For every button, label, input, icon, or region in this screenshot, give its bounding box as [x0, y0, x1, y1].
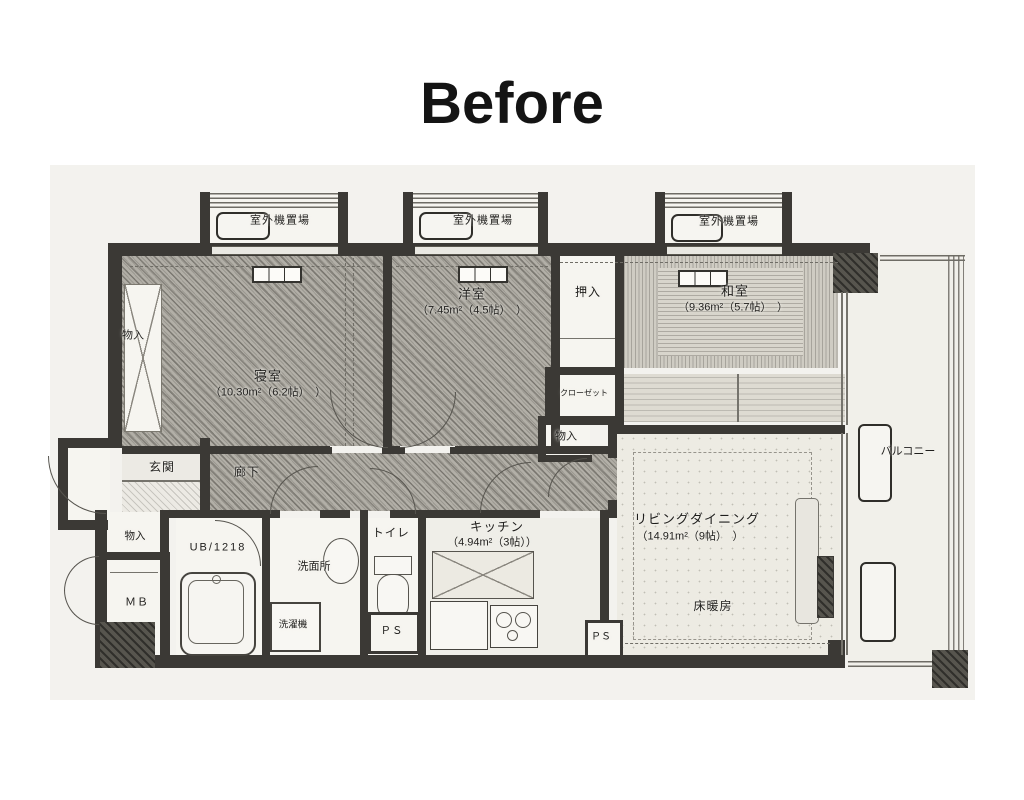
meter-box-label: ＭＢ	[125, 597, 149, 610]
cabinet-icon	[795, 498, 819, 624]
pipe-space-label: ＰＳ	[381, 625, 404, 637]
toilet-label: トイレ	[372, 527, 410, 540]
living-dining-label: リビングダイニング	[634, 513, 760, 528]
wall	[338, 192, 348, 248]
japanese-room-label: 和室	[721, 285, 749, 300]
window	[841, 292, 843, 425]
wall	[545, 416, 624, 425]
wall	[615, 425, 845, 434]
bedroom-label: 寝室	[254, 370, 282, 385]
window	[212, 246, 338, 255]
storage-left-floor	[124, 284, 162, 432]
floor-heating-label: 床暖房	[693, 600, 732, 614]
page-title: Before	[420, 70, 604, 137]
western-room-area-label: （7.45m²（4.5帖） ）	[417, 305, 527, 318]
outdoor-unit-label: 室外機置場	[250, 215, 310, 228]
oshiire-label: 押入	[575, 286, 601, 300]
kitchen-area-label: （4.94m²（3帖））	[447, 537, 537, 550]
dashed-line	[560, 262, 838, 263]
ac-outdoor-unit-icon	[858, 424, 892, 502]
plank-seam	[737, 374, 739, 422]
wall	[545, 367, 552, 425]
wall	[122, 446, 330, 454]
door-post	[398, 447, 405, 454]
burner-icon	[515, 612, 531, 628]
pipe-space-label: ＰＳ	[591, 631, 611, 643]
hallway-label: 廊下	[234, 466, 260, 480]
door-post	[450, 447, 457, 454]
outdoor-unit-label: 室外機置場	[453, 215, 513, 228]
wall	[162, 510, 262, 518]
door-post	[382, 447, 389, 454]
balcony-top-edge	[880, 253, 965, 261]
page: { "title": "Before", "colors": { "wall":…	[0, 0, 1024, 800]
balcony-label: バルコニー	[881, 446, 936, 459]
wall	[107, 552, 168, 560]
japanese-room-area-label: （9.36m²（5.7帖） ）	[678, 302, 788, 315]
wall	[455, 446, 617, 454]
storage-bottom-label: 物入	[125, 530, 146, 542]
japanese-room-veranda	[624, 374, 845, 422]
entrance-step-line	[122, 480, 200, 482]
wall	[360, 510, 368, 655]
oshiire-floor	[560, 255, 615, 367]
wall	[615, 243, 624, 433]
railing	[200, 192, 348, 208]
storage-mid-label: 物入	[555, 431, 577, 444]
dashed-line	[620, 643, 830, 644]
unit-bath-label: UB/1218	[190, 542, 247, 555]
wall-block	[100, 622, 155, 668]
wall	[600, 510, 617, 518]
wall-block	[833, 253, 878, 293]
wall	[551, 367, 624, 375]
outdoor-unit-label: 室外機置場	[699, 216, 759, 229]
washer-label: 洗濯機	[279, 621, 308, 632]
wall-block	[932, 650, 968, 688]
window	[415, 246, 538, 255]
wall	[58, 520, 108, 530]
wall	[320, 510, 350, 518]
entrance-step	[122, 482, 200, 512]
railing	[403, 192, 548, 208]
burner-icon	[496, 612, 512, 628]
storage-left-label: 物入	[122, 330, 144, 343]
western-room-label: 洋室	[458, 288, 486, 303]
wall	[262, 518, 270, 655]
stove-icon	[490, 605, 538, 648]
window	[846, 433, 848, 655]
wall	[655, 192, 665, 248]
window	[846, 292, 848, 425]
bedroom-area-label: （10.30m²（6.2帖） ）	[210, 387, 326, 400]
oshiire-shelf-line	[560, 338, 615, 339]
living-dining-area-label: （14.91m²（9帖） ）	[637, 531, 744, 544]
bathtub-inner	[188, 580, 244, 644]
toilet-tank-icon	[374, 556, 412, 575]
drain-icon	[212, 575, 221, 584]
ceiling-light-icon	[252, 266, 302, 283]
wall	[538, 192, 548, 248]
wall	[200, 438, 210, 518]
window	[667, 246, 782, 255]
entrance-label: 玄関	[149, 461, 175, 475]
ac-outdoor-unit-icon	[860, 562, 896, 642]
kitchen-counter-icon	[432, 551, 534, 599]
wall	[782, 192, 792, 248]
washroom-label: 洗面所	[298, 561, 331, 574]
closet-label: クローゼット	[560, 388, 608, 397]
balcony-railing	[948, 255, 964, 663]
wall	[95, 655, 845, 668]
wall	[108, 243, 122, 446]
kitchen-label: キッチン	[470, 520, 524, 534]
railing	[655, 192, 792, 208]
wall	[403, 192, 413, 248]
wall	[160, 552, 170, 655]
tv-board-icon	[817, 556, 834, 618]
ceiling-light-icon	[458, 266, 508, 283]
window	[841, 433, 843, 655]
door-post	[325, 447, 332, 454]
kitchen-sink-unit	[430, 601, 488, 650]
burner-icon	[507, 630, 518, 641]
meter-box-line	[110, 572, 158, 573]
wall	[200, 192, 210, 248]
